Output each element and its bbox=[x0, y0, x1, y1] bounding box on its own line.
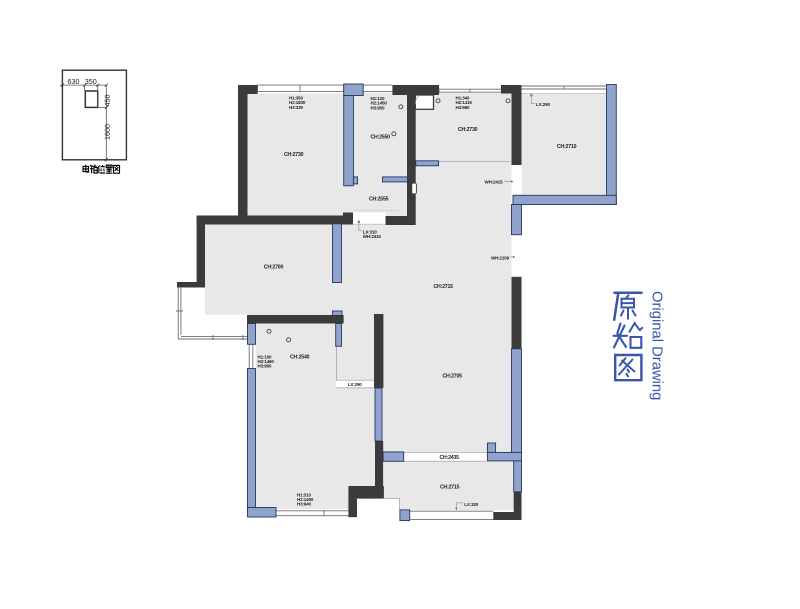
svg-text:H3:960: H3:960 bbox=[456, 105, 471, 110]
svg-text:CH:2540: CH:2540 bbox=[290, 355, 310, 361]
svg-text:LX:290: LX:290 bbox=[536, 102, 551, 107]
svg-text:CH:2730: CH:2730 bbox=[284, 152, 304, 158]
svg-text:CH:2715: CH:2715 bbox=[440, 485, 460, 491]
svg-text:H3:330: H3:330 bbox=[289, 105, 304, 110]
svg-text:H3:950: H3:950 bbox=[258, 364, 273, 369]
svg-text:1600: 1600 bbox=[103, 124, 112, 140]
svg-text:CH:2715: CH:2715 bbox=[434, 284, 454, 290]
svg-text:CH:2730: CH:2730 bbox=[458, 127, 478, 133]
svg-text:350: 350 bbox=[85, 77, 97, 86]
svg-text:LX:320: LX:320 bbox=[464, 502, 479, 507]
svg-text:CH:2550: CH:2550 bbox=[371, 135, 391, 141]
svg-text:WH:2415: WH:2415 bbox=[363, 234, 382, 239]
svg-text:Original Drawing: Original Drawing bbox=[649, 291, 665, 400]
svg-text:WH:2415: WH:2415 bbox=[485, 180, 504, 185]
svg-text:LX:290: LX:290 bbox=[348, 382, 363, 387]
svg-text:CH:2705: CH:2705 bbox=[443, 374, 463, 380]
svg-text:CH:2710: CH:2710 bbox=[557, 144, 577, 150]
svg-text:H3:940: H3:940 bbox=[297, 502, 312, 507]
svg-text:450: 450 bbox=[103, 95, 112, 107]
svg-text:CH:2435: CH:2435 bbox=[440, 455, 460, 461]
svg-text:CH:2555: CH:2555 bbox=[369, 197, 389, 203]
svg-text:WH:2109: WH:2109 bbox=[491, 256, 510, 261]
svg-text:H3:950: H3:950 bbox=[371, 105, 386, 110]
svg-text:CH:2700: CH:2700 bbox=[264, 265, 284, 271]
svg-text:630: 630 bbox=[68, 77, 80, 86]
